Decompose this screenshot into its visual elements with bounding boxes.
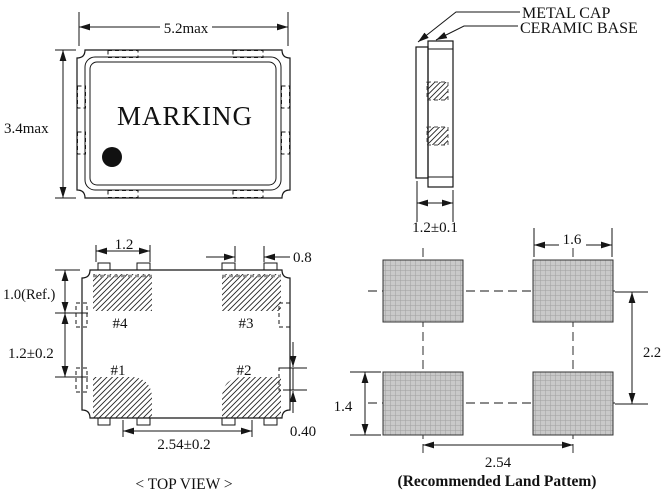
dim-castellation-label: 0.40 [290,424,316,440]
pad-1-label: #1 [111,363,126,379]
dim-thickness-label: 1.2±0.1 [412,220,458,236]
side-pad-hatch [427,127,448,145]
pad-1-hatch [93,377,152,418]
dim-land-pad-height-label: 1.4 [334,399,353,415]
pad-4-hatch [93,274,152,311]
pad-3-label: #3 [239,316,254,332]
pad-2-hatch [222,377,281,418]
ceramic-base-label: CERAMIC BASE [520,20,638,37]
marking-text: MARKING [117,101,253,131]
dim-width-label: 5.2max [164,21,209,37]
pin1-dot-icon [102,147,122,167]
pad-4-label: #4 [113,316,129,332]
land-pad-top-right [533,260,613,322]
dim-vertical-pitch-label: 2.2 [643,345,661,361]
dim-height-label: 3.4max [4,121,49,137]
dim-land-pad-width-label: 1.6 [563,232,582,248]
drawing-canvas: 5.2max 3.4max MARKING [0,0,661,495]
dim-row-pitch-label: 1.2±0.2 [8,346,54,362]
dim-edge-gap-label: 0.8 [293,250,312,266]
land-pad-bottom-left [383,372,463,435]
top-view-caption: < TOP VIEW > [135,476,232,493]
dim-horizontal-pitch-label: 2.54 [485,455,512,471]
mechanical-drawing-page: 5.2max 3.4max MARKING [0,0,661,495]
side-pad-hatch [427,82,448,100]
pad-2-label: #2 [237,363,252,379]
land-pad-top-left [383,260,463,322]
pad-3-hatch [222,274,281,311]
dim-pad-width-label: 1.2 [115,237,134,253]
land-pattern-caption: (Recommended Land Pattem) [398,473,597,490]
land-pad-bottom-right [533,372,613,435]
dim-ref-height-label: 1.0(Ref.) [3,287,56,303]
dim-pad-pitch-label: 2.54±0.2 [157,437,210,453]
